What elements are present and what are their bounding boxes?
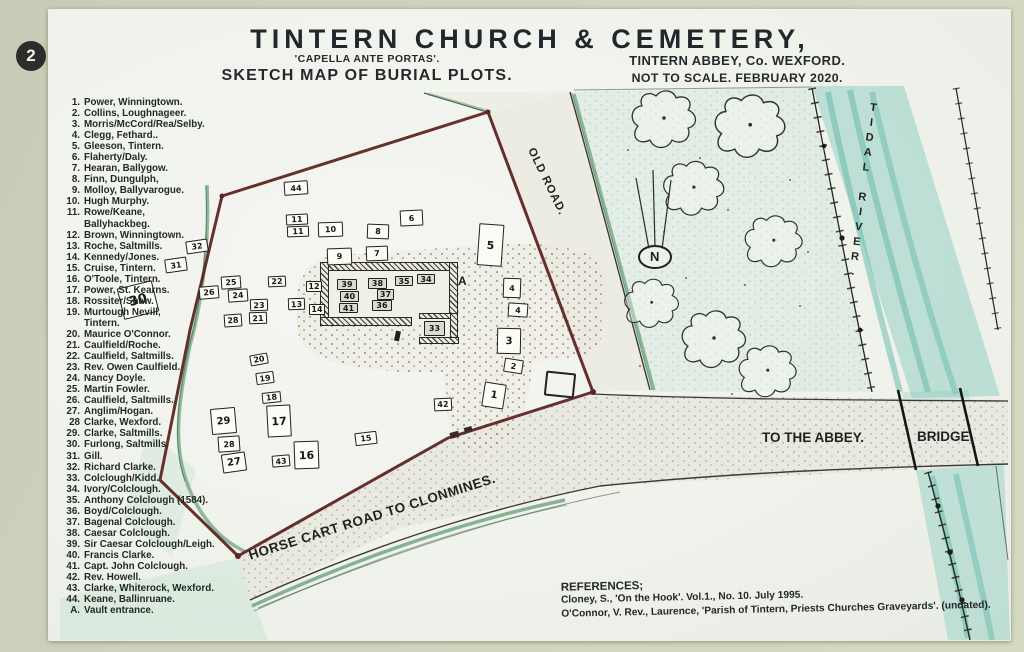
legend-item: 22.Caulfield, Saltmills. bbox=[58, 351, 244, 362]
plot-box-12: 12 bbox=[306, 281, 322, 292]
legend-item: 28Clarke, Wexford. bbox=[58, 417, 244, 428]
legend-item: 34.Ivory/Colclough. bbox=[58, 484, 244, 495]
legend-item: 26.Caulfield, Saltmills. bbox=[58, 395, 244, 406]
plot-box-5: 5 bbox=[477, 223, 505, 267]
plot-box-34: 34 bbox=[417, 274, 435, 284]
plot-box-36: 36 bbox=[372, 300, 392, 311]
plot-box-11: 11 bbox=[286, 213, 309, 225]
plot-box-39: 39 bbox=[337, 279, 357, 290]
church-wall-south bbox=[320, 317, 412, 326]
legend-item: 24.Nancy Doyle. bbox=[58, 373, 244, 384]
legend-item: 23.Rev. Owen Caulfield. bbox=[58, 362, 244, 373]
legend-item: 33.Colclough/Kidd. bbox=[58, 473, 244, 484]
legend-item: 20.Maurice O'Connor. bbox=[58, 329, 244, 340]
legend-item: 5.Gleeson, Tintern. bbox=[58, 141, 244, 152]
church-annex-wall-top bbox=[419, 313, 453, 319]
map-location: TINTERN ABBEY, Co. WEXFORD. bbox=[574, 53, 900, 68]
legend-item: A.Vault entrance. bbox=[58, 605, 244, 616]
sketch-map-label: SKETCH MAP OF BURIAL PLOTS. bbox=[160, 67, 574, 85]
plot-box-43: 43 bbox=[272, 454, 291, 468]
legend-item: 1.Power, Winningtown. bbox=[58, 97, 244, 108]
legend-item: 27.Anglim/Hogan. bbox=[58, 406, 244, 417]
legend-item: 9.Molloy, Ballyvarogue. bbox=[58, 185, 244, 196]
legend-item: 11.Rowe/Keane, bbox=[58, 207, 244, 218]
plot-box-35: 35 bbox=[395, 276, 413, 286]
legend-item: 16.O'Toole, Tintern. bbox=[58, 274, 244, 285]
legend-item: 6.Flaherty/Daly. bbox=[58, 152, 244, 163]
plot-box-13: 13 bbox=[288, 298, 305, 311]
plot-box-41: 41 bbox=[339, 303, 358, 313]
legend-item: 37.Bagenal Colclough. bbox=[58, 517, 244, 528]
plot-box-17: 17 bbox=[266, 404, 292, 437]
header-subrow: 'CAPELLA ANTE PORTAS'. SKETCH MAP OF BUR… bbox=[160, 53, 900, 85]
legend-item: 17.Power, St. Kearns. bbox=[58, 285, 244, 296]
legend-item: 21.Caulfield/Roche. bbox=[58, 340, 244, 351]
legend-item: 7.Hearan, Ballygow. bbox=[58, 163, 244, 174]
legend-item: 2.Collins, Loughnageer. bbox=[58, 108, 244, 119]
church-wall-east bbox=[449, 262, 458, 314]
legend-item: 36.Boyd/Colclough. bbox=[58, 506, 244, 517]
plot-box-7: 7 bbox=[366, 246, 389, 262]
plot-box-19: 19 bbox=[255, 371, 274, 385]
legend-item: 18.Rossiter/Shaw. bbox=[58, 296, 244, 307]
legend-item: 29.Clarke, Saltmills. bbox=[58, 428, 244, 439]
scale-note: NOT TO SCALE. FEBRUARY 2020. bbox=[574, 71, 900, 85]
legend-item: 42.Rev. Howell. bbox=[58, 572, 244, 583]
legend-item: 10.Hugh Murphy. bbox=[58, 196, 244, 207]
burial-plot-legend: 1.Power, Winningtown.2.Collins, Loughnag… bbox=[58, 97, 244, 616]
legend-item-cont: Ballyhackbeg. bbox=[58, 219, 244, 230]
north-label: N bbox=[650, 249, 659, 264]
plot-box-16: 16 bbox=[294, 441, 320, 470]
plot-box-38: 38 bbox=[368, 278, 387, 289]
plot-box-15: 15 bbox=[354, 431, 377, 447]
to-the-abbey-label: TO THE ABBEY. bbox=[762, 430, 864, 445]
page-title: TINTERN CHURCH & CEMETERY, bbox=[160, 24, 900, 55]
legend-item: 13.Roche, Saltmills. bbox=[58, 241, 244, 252]
plot-box-40: 40 bbox=[340, 291, 359, 302]
legend-item: 15.Cruise, Tintern. bbox=[58, 263, 244, 274]
legend-item: 35.Anthony Colclough (1584). bbox=[58, 495, 244, 506]
plot-box-33: 33 bbox=[424, 321, 445, 336]
legend-item: 14.Kennedy/Jones. bbox=[58, 252, 244, 263]
map-subtitle: 'CAPELLA ANTE PORTAS'. bbox=[160, 53, 574, 65]
legend-item: 4.Clegg, Fethard.. bbox=[58, 130, 244, 141]
legend-item: 30.Furlong, Saltmills. bbox=[58, 439, 244, 450]
plot-box-18: 18 bbox=[261, 391, 281, 404]
legend-item: 39.Sir Caesar Colclough/Leigh. bbox=[58, 539, 244, 550]
sign-number-badge: 2 bbox=[16, 41, 46, 71]
plot-box-9: 9 bbox=[327, 248, 353, 266]
plot-box-44: 44 bbox=[284, 180, 309, 196]
plot-box-22: 22 bbox=[268, 276, 287, 288]
legend-item-cont: Tintern. bbox=[58, 318, 244, 329]
plot-box-23: 23 bbox=[250, 299, 268, 312]
plot-box-10: 10 bbox=[318, 222, 344, 238]
legend-item: 19.Murtough Nevill, bbox=[58, 307, 244, 318]
plot-box-1: 1 bbox=[481, 381, 507, 409]
plot-box-14: 14 bbox=[309, 304, 325, 315]
plot-box-6: 6 bbox=[400, 209, 424, 226]
legend-item: 8.Finn, Dungulph, bbox=[58, 174, 244, 185]
legend-item: 25.Martin Fowler. bbox=[58, 384, 244, 395]
plot-box-4: 4 bbox=[508, 302, 529, 317]
legend-item: 12.Brown, Winningtown. bbox=[58, 230, 244, 241]
plot-box-3: 3 bbox=[497, 328, 521, 354]
legend-item: 38.Caesar Colclough. bbox=[58, 528, 244, 539]
legend-item: 41.Capt. John Colclough. bbox=[58, 561, 244, 572]
plot-box-37: 37 bbox=[377, 289, 394, 300]
plot-box-21: 21 bbox=[249, 312, 267, 325]
church-annex-wall-bottom bbox=[419, 337, 459, 344]
plot-box-11: 11 bbox=[287, 226, 309, 238]
plot-box-42: 42 bbox=[434, 398, 453, 412]
photo-background: 2 bbox=[0, 0, 1024, 652]
unmarked-plot-box bbox=[544, 371, 576, 399]
plot-box-2: 2 bbox=[503, 358, 524, 375]
legend-item: 3.Morris/McCord/Rea/Selby. bbox=[58, 119, 244, 130]
vault-entrance-label: A bbox=[458, 274, 467, 288]
legend-item: 32.Richard Clarke. bbox=[58, 462, 244, 473]
legend-item: 44.Keane, Ballinruane. bbox=[58, 594, 244, 605]
legend-item: 40.Francis Clarke. bbox=[58, 550, 244, 561]
plot-box-4: 4 bbox=[503, 278, 522, 299]
plot-box-8: 8 bbox=[367, 224, 390, 240]
bridge-label: BRIDGE. bbox=[917, 429, 973, 444]
legend-item: 43.Clarke, Whiterock, Wexford. bbox=[58, 583, 244, 594]
legend-item: 31.Gill. bbox=[58, 451, 244, 462]
